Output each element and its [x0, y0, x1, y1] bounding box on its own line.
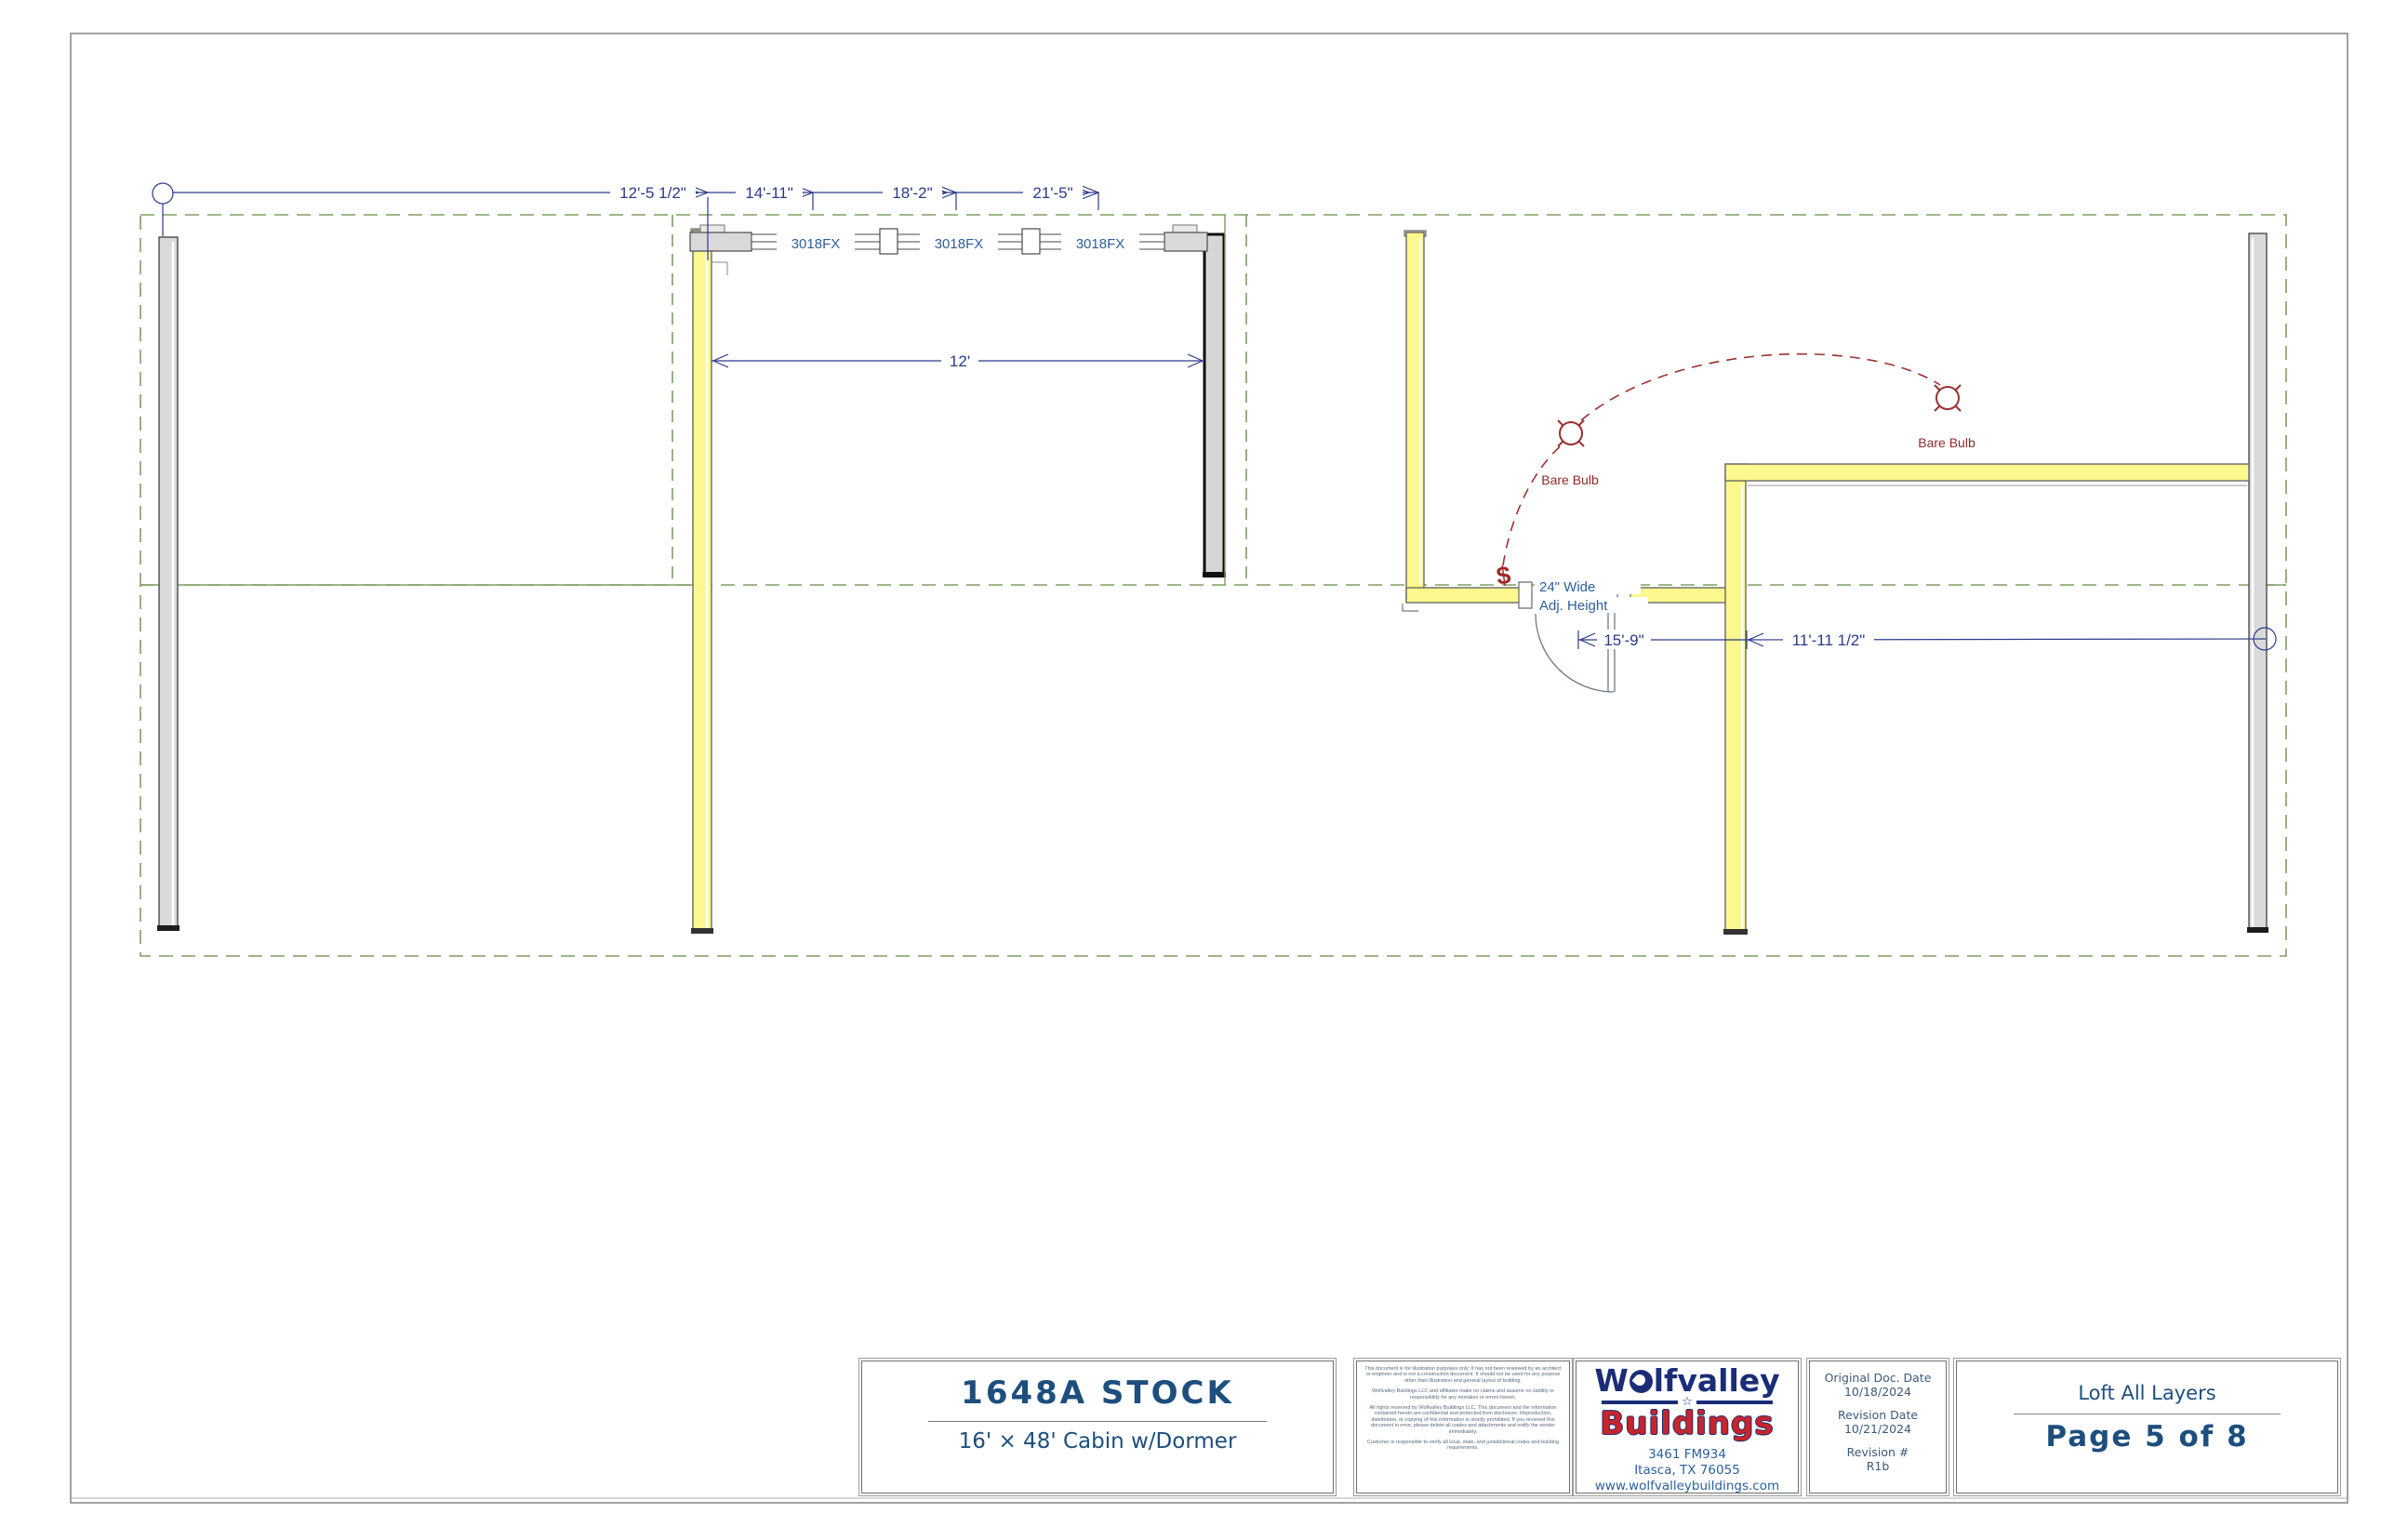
disclaimer-paragraph: This document is for illustration purpos… [1363, 1366, 1563, 1384]
titleblock-logo-box: Wlfvalley ☆ Buildings 3461 FM934 Itasca,… [1576, 1361, 1799, 1494]
switch-symbol: $ [1495, 561, 1512, 591]
titleblock-model-box: 1648A STOCK 16' × 48' Cabin w/Dormer [861, 1361, 1334, 1494]
drawing-sheet: Bare Bulb Bare Bulb $ 3018FX 3018FX 3018… [0, 0, 2381, 1540]
disclaimer-paragraph: All rights reserved by Wolfvalley Buildi… [1363, 1405, 1563, 1435]
logo-wordmark-bottom: Buildings [1576, 1407, 1798, 1440]
wiring-dashed-arc [1581, 354, 1940, 420]
wall-right-exterior [2247, 233, 2268, 933]
address-line1: 3461 FM934 [1576, 1447, 1798, 1463]
floor-plan: Bare Bulb Bare Bulb $ 3018FX 3018FX 3018… [0, 0, 2381, 1540]
disclaimer-paragraph: Wolfvalley Buildings LLC and affiliates … [1363, 1388, 1563, 1401]
dimension-label: 12'-5 1/2" [619, 184, 686, 202]
revision-number-value: R1b [1810, 1459, 1946, 1473]
dimension-label: 11'-11 1/2" [1792, 631, 1866, 649]
company-website: www.wolfvalleybuildings.com [1576, 1479, 1798, 1494]
disclaimer-paragraph: Customer is responsible to verify all lo… [1363, 1440, 1563, 1452]
titleblock-disclaimer-box: This document is for illustration purpos… [1356, 1361, 1570, 1494]
revision-number-label: Revision # [1810, 1445, 1946, 1459]
door-jamb [1519, 582, 1532, 608]
wall-room-west [1404, 231, 1426, 602]
address-line2: Itasca, TX 76055 [1576, 1463, 1798, 1479]
wall-room-east [1723, 464, 1748, 935]
divider-line [928, 1421, 1267, 1422]
window-mullion [880, 229, 898, 254]
logo-letter-w: W [1594, 1365, 1628, 1397]
dimension-label: 14'-11" [745, 184, 793, 202]
bulb-label: Bare Bulb [1541, 472, 1599, 487]
page-number: Page 5 of 8 [1957, 1420, 2337, 1454]
door [1536, 609, 1615, 692]
window-label: 3018FX [791, 236, 841, 252]
titleblock-revisions-box: Original Doc. Date 10/18/2024 Revision D… [1809, 1361, 1947, 1494]
model-description: 16' × 48' Cabin w/Dormer [862, 1429, 1333, 1454]
revision-date-value: 10/21/2024 [1810, 1422, 1946, 1436]
door-note-line2: Adj. Height [1539, 598, 1608, 614]
dimension-origin-marker [153, 183, 173, 204]
bare-bulb-icon [1935, 385, 1961, 411]
wall-storage-north [1725, 464, 2249, 485]
wall-dormer-west [691, 229, 713, 934]
dimension-label: 12' [950, 352, 970, 370]
window-label: 3018FX [1076, 236, 1125, 252]
window-label: 3018FX [935, 236, 984, 252]
wolf-logo-o-icon [1629, 1370, 1653, 1393]
dimension-label: 18'-2" [892, 184, 932, 202]
window-mullion [1022, 229, 1040, 254]
wiring-dashed-arc [1503, 443, 1564, 565]
titleblock-page-box: Loft All Layers Page 5 of 8 [1956, 1361, 2338, 1494]
divider-line [2014, 1414, 2280, 1414]
door-note-line1: 24" Wide [1539, 579, 1595, 595]
logo-wordmark-top: Wlfvalley [1576, 1365, 1798, 1397]
wall-dormer-east [1203, 215, 1226, 585]
bulb-label: Bare Bulb [1918, 435, 1975, 450]
bare-bulb-icon [1558, 420, 1584, 446]
layer-name: Loft All Layers [1957, 1382, 2337, 1404]
door-swing-arc [1536, 614, 1614, 692]
window-labels: 3018FX 3018FX 3018FX [777, 232, 1139, 255]
wall-left-exterior [157, 237, 180, 931]
revision-date-label: Revision Date [1810, 1408, 1946, 1422]
walls [157, 215, 2268, 935]
company-address: 3461 FM934 Itasca, TX 76055 www.wolfvall… [1576, 1447, 1798, 1494]
dimension-label: 21'-5" [1032, 184, 1072, 202]
logo-letters-rest: lfvalley [1654, 1365, 1780, 1397]
original-date-label: Original Doc. Date [1810, 1371, 1946, 1385]
dimension-label: 15'-9" [1603, 631, 1643, 649]
original-date-value: 10/18/2024 [1810, 1385, 1946, 1399]
model-number: 1648A STOCK [862, 1374, 1333, 1412]
